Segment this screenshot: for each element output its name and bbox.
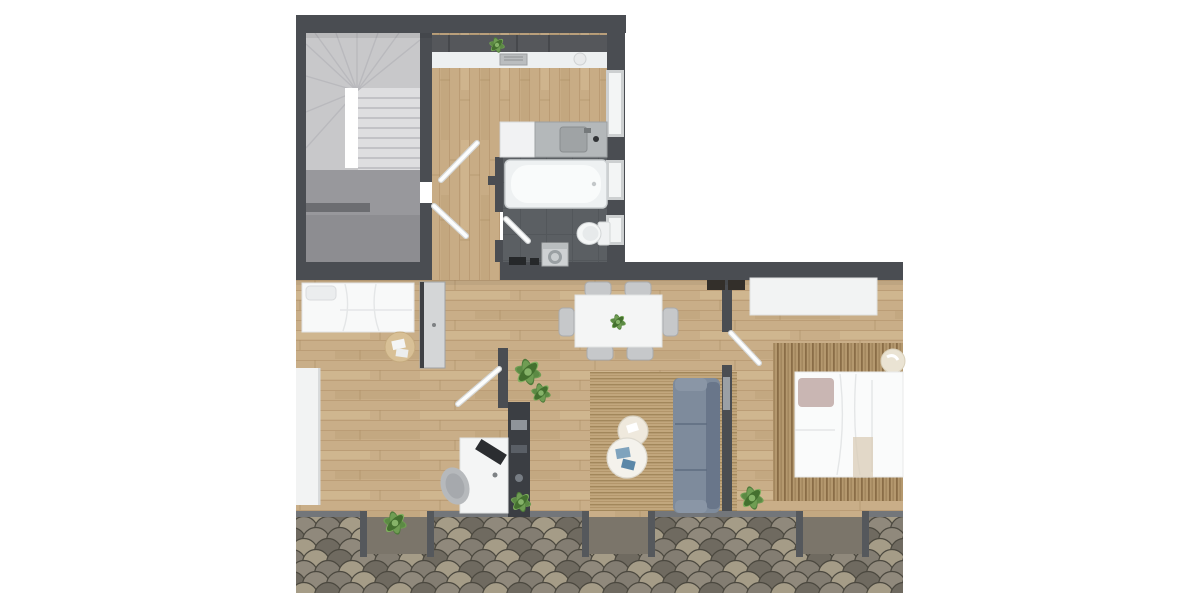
handrail xyxy=(306,203,370,212)
wall-vent xyxy=(728,280,745,290)
floor-mat xyxy=(509,257,526,265)
floor-mat xyxy=(530,258,539,265)
stairwell-void xyxy=(345,88,358,168)
stair-hall-wall xyxy=(420,203,432,262)
wardrobe-handle xyxy=(432,323,436,327)
kitchen xyxy=(432,35,607,68)
pillow-mauve xyxy=(798,378,834,407)
bed-throw xyxy=(853,437,873,477)
dormer-post xyxy=(796,511,803,557)
upper-cabinets xyxy=(432,35,607,52)
image-crop-edge xyxy=(0,593,1200,600)
plate xyxy=(574,53,586,65)
sofa xyxy=(673,378,720,513)
bedside-mat xyxy=(385,332,415,362)
window-icon xyxy=(606,160,624,200)
faucet xyxy=(584,128,591,133)
bathtub-basin xyxy=(511,165,601,203)
floor-plan-render xyxy=(0,0,1200,600)
wall-desk-shelf xyxy=(296,368,321,505)
double-bed xyxy=(302,283,414,332)
staircase xyxy=(306,33,420,262)
dormer-post xyxy=(360,511,367,557)
vanity-cabinet xyxy=(500,122,535,157)
dormer-post xyxy=(862,511,869,557)
bathroom-wall-stub xyxy=(488,176,503,185)
stair-hall-wall xyxy=(420,33,432,182)
eaves-wall xyxy=(296,511,360,517)
drain xyxy=(592,182,596,186)
sink-basin xyxy=(560,127,587,152)
eaves-wall xyxy=(869,511,903,517)
knob xyxy=(593,136,599,142)
wall-vent xyxy=(707,280,725,290)
dormer-post xyxy=(582,511,589,557)
double-bed xyxy=(795,372,903,477)
window-icon xyxy=(606,70,624,137)
dresser xyxy=(750,278,877,315)
coffee-table-large xyxy=(607,438,647,478)
sofa-backrest xyxy=(706,382,720,509)
pillow xyxy=(306,286,336,300)
roof xyxy=(279,506,942,600)
exterior-wall-north xyxy=(296,15,626,33)
dormer-post xyxy=(427,511,434,557)
mouse xyxy=(493,473,498,478)
pouf xyxy=(881,349,905,373)
hallway-partition xyxy=(498,348,508,408)
wall-radiator xyxy=(723,377,730,410)
dormer-post xyxy=(648,511,655,557)
bathroom-wall xyxy=(495,240,503,262)
bedroom-north-wall xyxy=(296,262,432,280)
toilet xyxy=(577,222,610,245)
wardrobe xyxy=(420,282,445,368)
washing-machine xyxy=(542,243,568,266)
exterior-wall-west xyxy=(296,15,306,280)
